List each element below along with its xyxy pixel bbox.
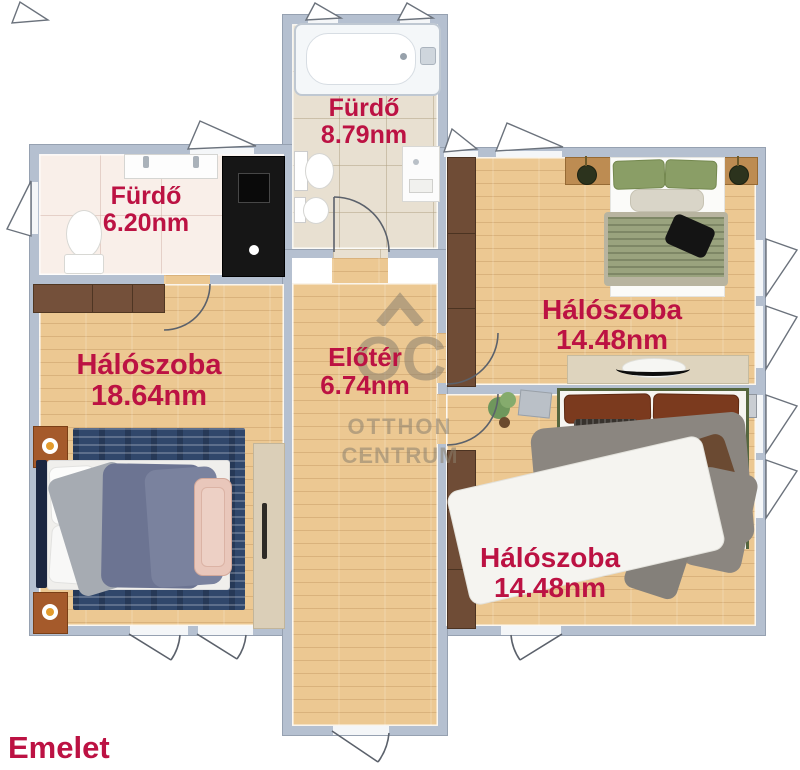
pillow <box>613 159 666 190</box>
room-area: 6.20nm <box>103 210 189 237</box>
window-flap-icon <box>7 181 31 236</box>
lamp-icon <box>42 604 58 620</box>
room-label-furdo-left: Fürdő 6.20nm <box>103 183 189 236</box>
door-swing-icon <box>197 634 246 659</box>
room-area: 6.74nm <box>320 372 410 400</box>
room-name: Előtér <box>320 344 410 372</box>
roof-chevron-icon <box>372 292 428 326</box>
window-frame <box>496 151 562 157</box>
window-flap-icon <box>766 395 797 453</box>
dresser-handle-icon <box>262 503 267 559</box>
door-swing-icon <box>511 634 562 660</box>
wardrobe <box>33 284 165 313</box>
room-area: 18.64nm <box>76 381 221 412</box>
lamp-icon <box>42 438 58 454</box>
room-label-furdo-top: Fürdő 8.79nm <box>321 95 407 148</box>
room-name: Hálószoba <box>76 350 221 381</box>
room-name: Fürdő <box>103 183 189 210</box>
room-area: 14.48nm <box>480 573 620 603</box>
lamp-icon <box>577 165 597 185</box>
room-name: Fürdő <box>321 95 407 122</box>
floor-title: Emelet <box>8 730 110 766</box>
corridor-threshold <box>332 258 388 283</box>
vanity-double-sink <box>124 154 218 179</box>
window-frame <box>756 306 763 368</box>
toilet-icon <box>305 153 334 189</box>
shower-drain-icon <box>249 245 259 255</box>
room-label-eloter: Előtér 6.74nm <box>320 344 410 399</box>
vanity-cabinet <box>402 146 440 202</box>
bathtub-basin <box>306 33 416 85</box>
room-name: Hálószoba <box>480 543 620 573</box>
watermark-line1: OTTHON <box>327 414 473 440</box>
door-gap-bathroom-top <box>333 249 388 258</box>
lamp-stem <box>585 156 587 166</box>
window-flap-icon <box>766 306 797 369</box>
door-gap-corridor-bottom <box>333 726 389 735</box>
bench-detail-icon <box>616 362 690 376</box>
sink-icon <box>413 159 419 165</box>
window-frame <box>32 182 38 234</box>
dresser <box>253 443 285 629</box>
shower-cabin <box>222 156 285 277</box>
pillow <box>665 159 718 190</box>
window-flap-icon <box>496 123 563 151</box>
toilet-tank <box>64 254 104 274</box>
window-flap-icon <box>766 460 797 518</box>
room-label-haloszoba-left: Hálószoba 18.64nm <box>76 350 221 411</box>
bed-bench <box>194 478 232 576</box>
pillow <box>630 189 704 212</box>
room-label-haloszoba-bottom-right: Hálószoba 14.48nm <box>480 543 620 602</box>
window-frame <box>756 240 763 296</box>
cabinet-detail <box>409 179 433 193</box>
lamp-stem <box>737 156 739 166</box>
bidet-icon <box>303 197 329 224</box>
window-flap-icon <box>12 2 48 23</box>
faucet-icon <box>143 156 149 168</box>
plant-icon <box>500 392 516 408</box>
floor-plan: OC OTTHON CENTRUM Fürdő 6.20nm Fürdő 8.7… <box>0 0 800 770</box>
bathtub-faucet-icon <box>420 47 436 65</box>
nightstand <box>33 592 68 634</box>
bed-headboard <box>36 460 47 588</box>
bathtub-drain-icon <box>400 53 407 60</box>
plant-pot-icon <box>499 417 510 428</box>
lamp-icon <box>729 165 749 185</box>
room-area: 14.48nm <box>542 325 682 355</box>
blanket <box>604 212 728 286</box>
window-frame <box>756 395 763 453</box>
desk-mat <box>518 389 553 418</box>
door-gap-bedroom-left-bottom-1 <box>130 626 188 635</box>
door-gap-bathroom-left <box>164 275 210 284</box>
door-gap-bedroom-left-bottom-2 <box>198 626 253 635</box>
room-name: Hálószoba <box>542 295 682 325</box>
window-flap-icon <box>766 239 797 296</box>
room-label-haloszoba-top-right: Hálószoba 14.48nm <box>542 295 682 354</box>
toilet-icon <box>66 210 102 258</box>
bathtub <box>294 23 441 96</box>
door-gap-bedroom-br-bottom <box>501 626 561 635</box>
door-swing-icon <box>332 731 389 762</box>
faucet-icon <box>193 156 199 168</box>
shower-tray <box>238 173 270 203</box>
watermark-line2: CENTRUM <box>327 443 473 469</box>
door-swing-icon <box>129 634 180 660</box>
room-area: 8.79nm <box>321 122 407 149</box>
